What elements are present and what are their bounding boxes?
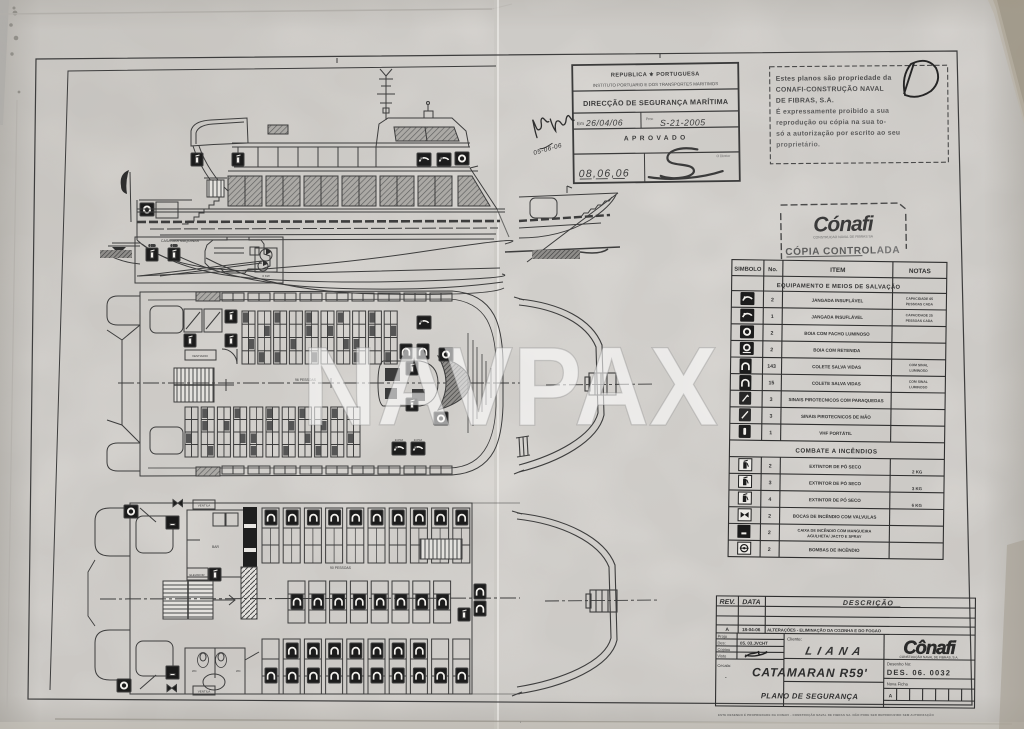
svg-text:Des:: Des: (718, 640, 726, 645)
svg-text:6 KG: 6 KG (171, 244, 179, 248)
svg-text:Em: Em (577, 121, 584, 126)
svg-text:BAR: BAR (212, 545, 220, 549)
svg-text:JANGADA INSUFLÁVEL: JANGADA INSUFLÁVEL (812, 297, 864, 304)
svg-text:2: 2 (771, 297, 774, 303)
svg-text:DES. 06. 0032: DES. 06. 0032 (887, 668, 951, 678)
svg-text:PESSOAS CADA: PESSOAS CADA (906, 302, 934, 306)
svg-text:COMBATE A INCÊNDIOS: COMBATE A INCÊNDIOS (795, 446, 877, 455)
svg-text:15: 15 (768, 380, 774, 386)
svg-text:2: 2 (768, 514, 771, 520)
svg-text:4: 4 (768, 497, 771, 503)
svg-text:Desenho No:: Desenho No: (887, 661, 911, 666)
svg-text:A: A (725, 627, 729, 633)
svg-text:Copiou: Copiou (717, 647, 730, 652)
svg-text:BOIA COM RETENIDA: BOIA COM RETENIDA (813, 348, 861, 354)
svg-text:-: - (725, 675, 727, 681)
svg-text:143: 143 (767, 364, 776, 370)
svg-text:VHF PORTÁTIL: VHF PORTÁTIL (819, 430, 852, 436)
svg-text:3: 3 (770, 397, 773, 403)
svg-text:LIANA: LIANA (804, 645, 867, 658)
svg-text:Visto: Visto (717, 653, 727, 658)
svg-text:0 KW: 0 KW (262, 274, 270, 278)
svg-text:Cecala:: Cecala: (717, 663, 731, 668)
svg-text:CAPACIDADE 65: CAPACIDADE 65 (906, 297, 933, 301)
svg-text:APROVADO: APROVADO (624, 135, 689, 143)
svg-text:2: 2 (768, 530, 771, 536)
svg-text:3 KG: 3 KG (912, 486, 923, 491)
svg-text:2: 2 (770, 347, 773, 353)
svg-text:VENTILA: VENTILA (198, 690, 211, 694)
svg-text:6 KG: 6 KG (912, 503, 923, 508)
svg-text:CATAMARAN R59': CATAMARAN R59' (752, 665, 868, 680)
svg-text:DE FIBRAS, S.A.: DE FIBRAS, S.A. (776, 97, 834, 105)
svg-text:3: 3 (769, 414, 772, 420)
svg-text:CONSTRUÇÃO NAVAL DE FIBRAS, S.: CONSTRUÇÃO NAVAL DE FIBRAS, S.A. (899, 654, 958, 660)
svg-text:Estes planos são propriedad: Estes planos são propriedade da (776, 75, 892, 83)
svg-text:Proc: Proc (646, 117, 654, 121)
svg-text:COLETE SALVA VIDAS: COLETE SALVA VIDAS (812, 364, 861, 370)
svg-text:REV.: REV. (720, 599, 736, 606)
svg-text:só a autorização por escrito a: só a autorização por escrito ao seu (776, 130, 900, 138)
svg-text:2: 2 (768, 547, 771, 553)
svg-text:LUMINOSO: LUMINOSO (909, 369, 928, 373)
svg-text:CAPACIDADE 25: CAPACIDADE 25 (906, 313, 933, 317)
svg-text:REPUBLICA ⚜ PORTUGUESA: REPUBLICA ⚜ PORTUGUESA (611, 70, 700, 78)
svg-text:ESTE DESENHO É PROPRIEDADE DA: ESTE DESENHO É PROPRIEDADE DA CONAFI - C… (718, 712, 934, 717)
svg-text:WC: WC (192, 669, 197, 673)
svg-text:CASA DAS MAQUINAS: CASA DAS MAQUINAS (161, 239, 200, 243)
svg-text:NOTAS: NOTAS (909, 268, 932, 275)
svg-text:AGULHETA/ JACTO E SPRAY: AGULHETA/ JACTO E SPRAY (807, 533, 862, 539)
svg-text:1: 1 (771, 314, 774, 320)
svg-text:VESTIARIO: VESTIARIO (192, 354, 209, 358)
svg-text:3: 3 (769, 480, 772, 486)
svg-text:2 KG: 2 KG (912, 469, 923, 474)
svg-text:COM SINAL: COM SINAL (909, 380, 928, 384)
svg-text:Proju: Proju (718, 634, 727, 639)
svg-text:Nova Ficha: Nova Ficha (887, 681, 909, 686)
svg-text:LUMINOSO: LUMINOSO (909, 385, 928, 389)
svg-text:18-04-06: 18-04-06 (742, 627, 761, 632)
svg-text:JANGADA INSUFLÁVEL: JANGADA INSUFLÁVEL (811, 313, 863, 320)
svg-text:ITEM: ITEM (830, 267, 845, 274)
svg-text:COLETE SALVA VIDAS: COLETE SALVA VIDAS (812, 381, 861, 387)
svg-text:SINAIS PIROTECNICOS DE MÃO: SINAIS PIROTECNICOS DE MÃO (801, 413, 871, 420)
svg-text:reprodução ou cópia na sua: reprodução ou cópia na sua to- (776, 119, 886, 127)
svg-text:No.: No. (768, 267, 778, 273)
svg-text:WC: WC (236, 669, 241, 673)
svg-text:DESCRIÇÃO: DESCRIÇÃO (843, 598, 894, 607)
svg-text:SIMBOLO: SIMBOLO (734, 267, 762, 273)
svg-text:O Diretor: O Diretor (716, 154, 731, 158)
svg-text:A: A (889, 693, 893, 699)
svg-text:ALTERAÇÕES - ELIMINAÇÃO DA COZ: ALTERAÇÕES - ELIMINAÇÃO DA COZINHA E DO … (767, 627, 882, 633)
svg-text:BOIA COM FACHO LUMINOSO: BOIA COM FACHO LUMINOSO (804, 331, 870, 337)
svg-text:NAVPAX: NAVPAX (302, 324, 718, 449)
svg-text:S-21-2005: S-21-2005 (660, 117, 706, 128)
svg-text:DATA: DATA (742, 599, 760, 606)
svg-text:VENTILA: VENTILA (198, 504, 211, 508)
svg-text:proprietário.: proprietário. (776, 141, 820, 148)
svg-text:Cliente:: Cliente: (787, 636, 802, 641)
svg-text:6 KG: 6 KG (149, 244, 157, 248)
svg-text:PLANO DE SEGURANÇA: PLANO DE SEGURANÇA (761, 691, 859, 701)
svg-text:Cónafi: Cónafi (813, 212, 875, 236)
svg-text:PESSOAS CADA: PESSOAS CADA (906, 319, 934, 323)
svg-text:05. 03.JVCHT: 05. 03.JVCHT (740, 641, 768, 646)
svg-text:COM SINAL: COM SINAL (909, 363, 928, 367)
svg-text:2: 2 (771, 331, 774, 337)
svg-text:26/04/06: 26/04/06 (585, 117, 623, 128)
svg-text:2: 2 (769, 463, 772, 469)
svg-text:90 PESSOAS: 90 PESSOAS (330, 566, 352, 570)
svg-text:ELEVADOR: ELEVADOR (189, 573, 204, 577)
svg-text:1: 1 (769, 430, 772, 436)
svg-text:•: • (520, 720, 521, 724)
